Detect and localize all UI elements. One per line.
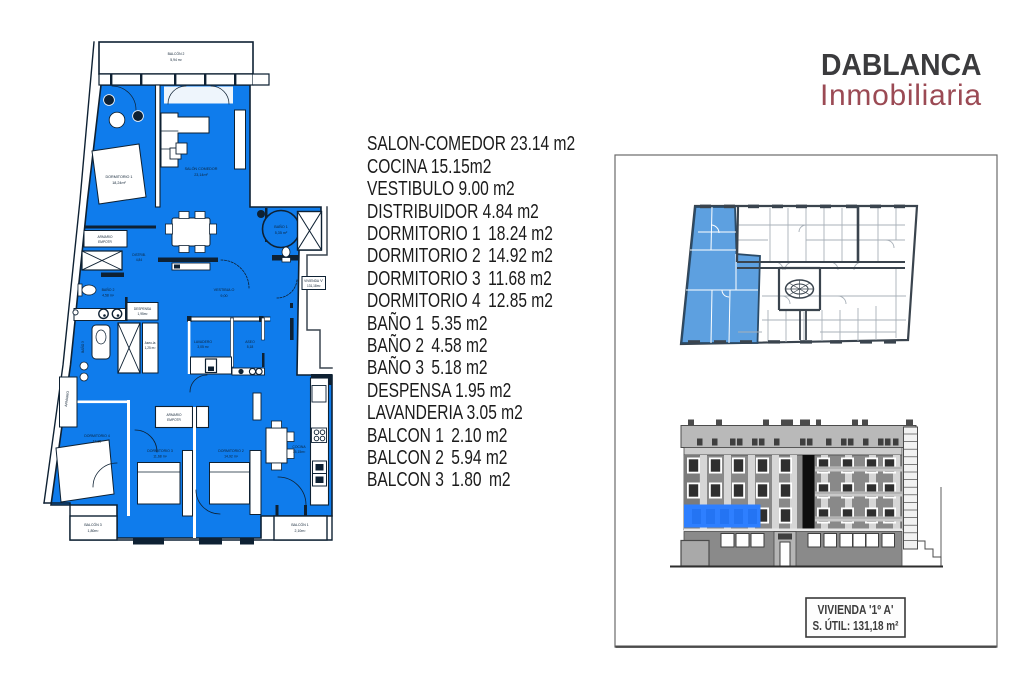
svg-text:ARMARIO: ARMARIO <box>167 413 182 417</box>
svg-text:COCINA: COCINA <box>292 445 306 449</box>
svg-text:9,00: 9,00 <box>220 294 227 298</box>
svg-text:EMPOTR: EMPOTR <box>167 418 181 422</box>
svg-text:11,68 m²: 11,68 m² <box>153 455 167 459</box>
svg-text:BAÑO 1: BAÑO 1 <box>274 224 288 229</box>
svg-text:DORMITORIO 1: DORMITORIO 1 <box>106 175 133 179</box>
svg-text:VIVIENDA ‘V’: VIVIENDA ‘V’ <box>304 279 323 283</box>
svg-text:DORMITORIO 4: DORMITORIO 4 <box>84 434 110 438</box>
svg-text:1,25 m²: 1,25 m² <box>145 346 156 350</box>
svg-text:VIVIENDA '1º A': VIVIENDA '1º A' <box>818 603 894 617</box>
svg-text:DORMITORIO 3: DORMITORIO 3 <box>147 449 173 453</box>
svg-text:BALCÓN 3: BALCÓN 3 <box>84 522 101 527</box>
svg-text:5,94 m²: 5,94 m² <box>170 58 182 62</box>
svg-text:BAÑO 2: BAÑO 2 <box>102 287 115 292</box>
svg-text:15,15m²: 15,15m² <box>293 450 306 454</box>
svg-text:5,35 m²: 5,35 m² <box>275 231 288 235</box>
svg-text:131,18m²: 131,18m² <box>307 284 320 288</box>
svg-text:ASEO: ASEO <box>245 340 255 344</box>
svg-text:23,14m²: 23,14m² <box>194 173 208 177</box>
svg-text:BALCÓN 1: BALCÓN 1 <box>291 522 308 527</box>
svg-text:BAÑO 3: BAÑO 3 <box>80 341 85 353</box>
svg-text:3,05 m²: 3,05 m² <box>197 345 209 349</box>
svg-text:4,84: 4,84 <box>136 258 142 262</box>
svg-text:Aseo-la: Aseo-la <box>145 341 156 345</box>
svg-text:DESPENSA: DESPENSA <box>134 307 152 311</box>
svg-text:4,58 m²: 4,58 m² <box>102 294 115 298</box>
svg-text:DISTRIB.: DISTRIB. <box>132 253 146 257</box>
svg-text:LAVADERO: LAVADERO <box>194 340 212 344</box>
svg-text:VESTIBULO: VESTIBULO <box>214 288 235 292</box>
svg-text:SALÓN COMEDOR: SALÓN COMEDOR <box>185 166 218 171</box>
svg-text:12,85: 12,85 <box>93 440 102 444</box>
svg-text:ARMARIO: ARMARIO <box>98 235 113 239</box>
svg-text:2,10m²: 2,10m² <box>295 529 307 533</box>
svg-text:18,24m²: 18,24m² <box>112 181 126 185</box>
svg-text:BALCÓN 2: BALCÓN 2 <box>168 51 185 56</box>
svg-text:EMPOTR: EMPOTR <box>98 240 112 244</box>
svg-text:1,80m²: 1,80m² <box>88 529 100 533</box>
svg-text:S. ÚTIL: 131,18 m²: S. ÚTIL: 131,18 m² <box>813 618 899 633</box>
svg-text:1,95m²: 1,95m² <box>138 312 148 316</box>
svg-text:DORMITORIO 2: DORMITORIO 2 <box>218 449 244 453</box>
svg-text:5,18: 5,18 <box>247 345 254 349</box>
svg-text:14,92 m²: 14,92 m² <box>224 455 239 459</box>
